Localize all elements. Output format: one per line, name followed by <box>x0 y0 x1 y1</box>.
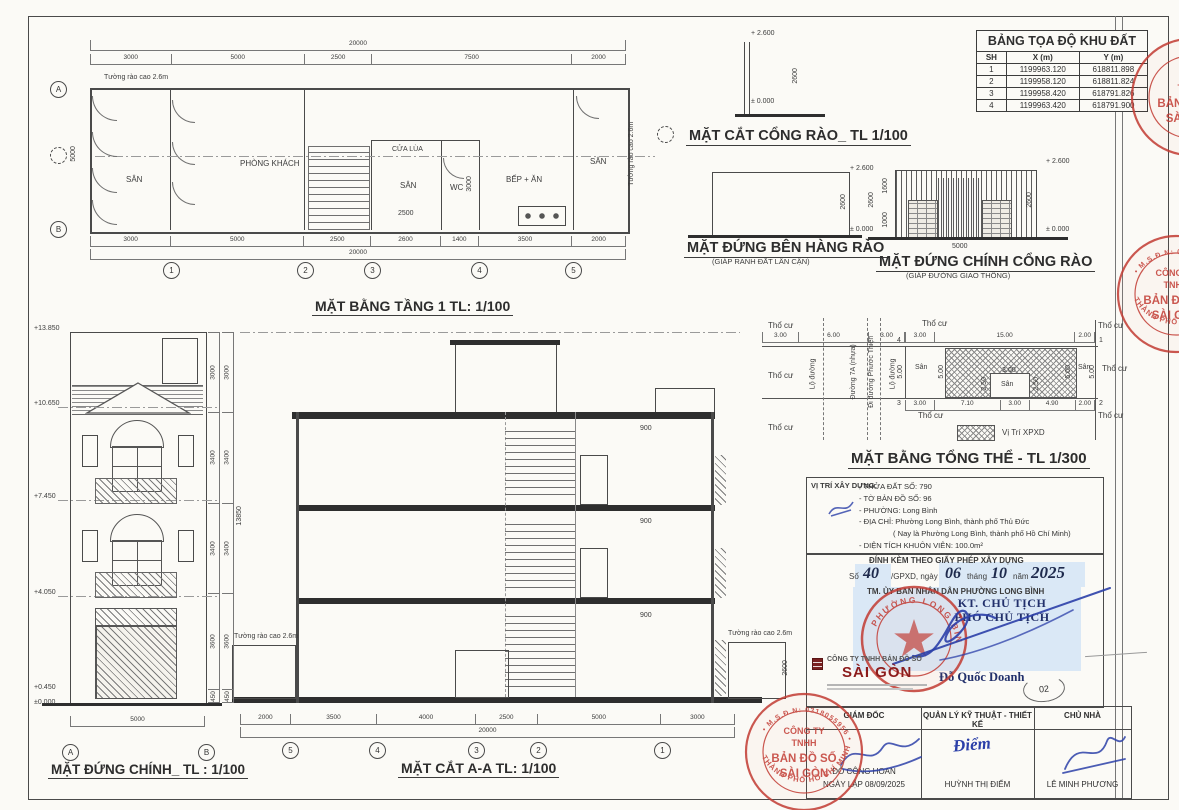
frame-inner-line <box>1115 16 1123 798</box>
titleblock-col3-name: LÊ MINH PHƯƠNG <box>1034 780 1131 789</box>
corner: 1 <box>1099 337 1103 345</box>
side-window <box>82 435 98 467</box>
side-window <box>178 435 194 467</box>
section-marker-icon <box>50 147 67 164</box>
level: +13.850 <box>34 325 60 333</box>
wall <box>573 88 574 230</box>
plan-dim-left: 5000 <box>70 146 78 162</box>
plot-top-dims: 3.0015.002.00 <box>905 332 1095 343</box>
balcony-rail <box>715 548 726 598</box>
plan-total-dim: 20000 <box>90 40 626 51</box>
blueprint-sheet: { "labels":{"fence":"Tường rào cao 2.6m"… <box>0 0 1179 810</box>
grid-bubble: 2 <box>530 742 547 759</box>
room-label: BẾP + ĂN <box>506 176 542 185</box>
location-line: ( Nay là Phường Long Bình, thành phố Hồ … <box>859 528 1099 540</box>
dim: 1000 <box>882 212 890 228</box>
room-label: WC <box>450 184 463 193</box>
grid-bubble-4: 4 <box>471 262 488 279</box>
dim: 2600 <box>868 192 876 208</box>
fence-dim: 2600 <box>782 660 790 676</box>
titleblock-col2-header: QUẢN LÝ KỸ THUẬT - THIẾT KẾ <box>921 711 1034 729</box>
ground-line <box>688 235 862 238</box>
dim: 1600 <box>882 178 890 194</box>
gate-front-title: MẶT ĐỨNG CHÍNH CỔNG RÀO <box>876 254 1095 272</box>
company-stamp: TNHH BẢN ĐỒ SỐ SÀI GÒN <box>1128 35 1179 159</box>
plan-total-dim-bottom: 20000 <box>90 249 626 260</box>
grid-bubble-3: 3 <box>364 262 381 279</box>
bulkhead-slab <box>450 340 560 345</box>
roof-gable <box>85 381 191 415</box>
section-door-ground <box>455 650 509 698</box>
location-line: - DIỆN TÍCH KHUÔN VIÊN: 100.0m² <box>859 540 1099 552</box>
grid-bubble: 3 <box>468 742 485 759</box>
roof-parapet <box>655 388 715 414</box>
side-window <box>82 530 98 562</box>
section-door <box>580 455 608 505</box>
blue-check-mark <box>825 494 857 520</box>
ground-line <box>868 237 1068 240</box>
stair-plan <box>308 146 370 230</box>
room-label: SÂN <box>590 158 606 167</box>
top-level-line <box>240 332 740 333</box>
corner: 2 <box>1099 400 1103 408</box>
stair-bulkhead <box>455 344 557 414</box>
company-name-line2: SÀI GÒN <box>842 664 912 681</box>
page-number: 02 <box>1022 674 1066 704</box>
level: ± 0.000 <box>850 226 873 234</box>
wall <box>711 412 714 703</box>
boundary-line <box>762 398 1098 399</box>
gate-center-bars <box>938 178 982 237</box>
fence-wall <box>232 645 296 699</box>
elevation-dims: 3000340034003600450 <box>208 332 220 703</box>
wall <box>170 88 171 230</box>
gate-pier <box>982 200 1012 239</box>
elevation-title: MẶT ĐỨNG CHÍNH_ TL : 1/100 <box>48 762 248 779</box>
company-logo-icon <box>812 658 823 670</box>
balcony-dim: 900 <box>640 612 652 620</box>
svg-text:BẢN ĐỒ SỐ: BẢN ĐỒ SỐ <box>1157 96 1179 110</box>
grid-bubble-A: A <box>50 81 67 98</box>
ground-line <box>42 703 222 706</box>
site-plan-title: MẶT BẰNG TỔNG THỂ - TL 1/300 <box>848 450 1090 469</box>
company-stamp: • M.S.Đ.N: 0318055956 • THÀNH PHỐ HỒ CHÍ… <box>742 690 866 810</box>
dim-v: 5.00 <box>938 365 946 379</box>
stair-flight <box>505 425 575 501</box>
road-dims: 3.006.003.00 <box>762 332 905 343</box>
section-bottom-dims: 200035004000250050003000 <box>240 714 735 725</box>
tho-cu: Thổ cư <box>768 424 793 433</box>
elevation-width-dim: 5000 <box>70 716 205 727</box>
svg-text:CÔNG TY: CÔNG TY <box>1155 267 1179 278</box>
section-marker-icon <box>657 126 674 143</box>
legend-swatch <box>957 425 995 441</box>
plot-bottom-dims: 3.007.103.004.902.00 <box>905 400 1095 411</box>
section-total-height: 13850 <box>236 506 244 525</box>
side-window <box>178 530 194 562</box>
svg-text:TNHH: TNHH <box>792 738 817 748</box>
wall <box>371 140 372 230</box>
section-title: MẶT CẮT A-A TL: 1/100 <box>398 760 559 778</box>
level: + 2.600 <box>751 30 775 38</box>
location-line: - PHƯỜNG: Long Bình <box>859 505 1099 517</box>
svg-text:BẢN ĐỒ SỐ: BẢN ĐỒ SỐ <box>1143 293 1179 307</box>
san-label: Sân <box>1001 381 1013 389</box>
room-label: SÂN <box>126 176 142 185</box>
road-label: Lộ đường <box>810 359 818 390</box>
stair-flight <box>505 518 575 594</box>
stair-shaft-line <box>575 412 576 697</box>
permit-number-hw: 40 <box>863 565 879 583</box>
section-door <box>580 548 608 598</box>
gate-width-dim: 5000 <box>952 243 968 251</box>
road-label: Đường 7A (nhựa) <box>850 344 858 399</box>
grid-bubble: 4 <box>369 742 386 759</box>
tho-cu: Thổ cư <box>1102 365 1127 374</box>
corner: 3 <box>897 400 901 408</box>
section-total-dim: 20000 <box>240 727 735 738</box>
dim: 2600 <box>792 68 800 84</box>
room-label: CỬA LÙA <box>392 146 423 154</box>
tho-cu: Thổ cư <box>768 322 793 331</box>
san-label: Sân <box>915 364 927 372</box>
level: ±0.000 <box>34 699 55 707</box>
svg-text:SÀI GÒN: SÀI GÒN <box>1152 309 1179 322</box>
road-label: Đi đường Phước Thiện <box>868 336 876 408</box>
grid-bubble-5: 5 <box>565 262 582 279</box>
balcony-rail <box>715 455 726 505</box>
designer-signature: Điểm <box>952 733 991 756</box>
titleblock-col3-header: CHỦ NHÀ <box>1034 711 1131 720</box>
coordinate-table: BẢNG TỌA ĐỘ KHU ĐẤTSHX (m)Y (m)11199963.… <box>976 30 1148 112</box>
svg-text:SÀI GÒN: SÀI GÒN <box>1166 112 1179 125</box>
company-address-line <box>827 684 927 686</box>
san-dim: 2.50 <box>981 377 989 391</box>
svg-text:CÔNG TY: CÔNG TY <box>783 725 824 736</box>
san-dim: 2.50 <box>1033 377 1041 391</box>
permit-so-label: Số <box>849 573 859 582</box>
grid-bubble-B: B <box>198 744 215 761</box>
room-label: SÂN <box>400 182 416 191</box>
gate-front-subtitle: (GIÁP ĐƯỜNG GIAO THÔNG) <box>906 272 1010 280</box>
level: + 2.600 <box>850 165 874 173</box>
level: +7.450 <box>34 493 56 501</box>
company-stamp: • M.S.Đ.N: 0318055956 • THÀNH PHỐ HỒ CHÍ… <box>1114 232 1179 356</box>
roof-slab <box>292 412 715 419</box>
location-line: - TỜ BẢN ĐỒ SỐ: 96 <box>859 493 1099 505</box>
gate-post <box>744 42 750 116</box>
grid-bubble-1: 1 <box>163 262 180 279</box>
level: ± 0.000 <box>1046 226 1069 234</box>
grid-bubble-B: B <box>50 221 67 238</box>
roof-bulkhead <box>162 338 198 384</box>
section-height-dims: 3000340034003600450 <box>222 332 234 703</box>
stair-flight <box>505 612 575 693</box>
dim-v: 5.00 <box>1065 365 1073 379</box>
location-lines: - THỬA ĐẤT SỐ: 790 - TỜ BẢN ĐỒ SỐ: 96 - … <box>859 481 1099 552</box>
plot-edge <box>1095 320 1096 440</box>
san-dim: 3.00 <box>1002 367 1016 375</box>
svg-text:TNHH: TNHH <box>1164 280 1179 290</box>
plan-dim-inner: 3000 <box>466 176 474 192</box>
side-fence-title: MẶT ĐỨNG BÊN HÀNG RÀO <box>684 240 887 258</box>
fence-label-top: Tường rào cao 2.6m <box>104 74 168 82</box>
legend-label: Vị Trí XPXD <box>1002 429 1045 438</box>
wall <box>296 412 299 703</box>
balcony-rail <box>95 478 177 504</box>
level-line <box>58 407 218 408</box>
svg-text:SÀI GÒN: SÀI GÒN <box>780 767 829 780</box>
side-fence-subtitle: (GIÁP RANH ĐẤT LÂN CẬN) <box>712 258 810 266</box>
level: + 2.600 <box>1046 158 1070 166</box>
level: +4.050 <box>34 589 56 597</box>
level: +10.650 <box>34 400 60 408</box>
tho-cu: Thổ cư <box>922 320 947 329</box>
fence-label: Tường rào cao 2.6m <box>728 630 792 638</box>
level: ± 0.000 <box>751 98 774 106</box>
wall <box>304 88 305 230</box>
balcony-rail <box>95 572 177 598</box>
boundary-line <box>762 346 1098 347</box>
tho-cu: Thổ cư <box>768 372 793 381</box>
wall <box>479 140 480 230</box>
stove-counter <box>518 206 566 226</box>
level: +0.450 <box>34 684 56 692</box>
corner: 4 <box>897 337 901 345</box>
grid-bubble: 1 <box>654 742 671 759</box>
wall <box>441 140 442 230</box>
titleblock-col2-name: HUỲNH THỊ ĐIỂM <box>921 780 1034 789</box>
balcony-dim: 900 <box>640 518 652 526</box>
dim-v: 5.00 <box>897 365 905 379</box>
dim-v: 5.00 <box>1089 365 1097 379</box>
balcony-rail <box>715 640 726 696</box>
owner-signature <box>1055 731 1131 775</box>
fence-panel <box>712 172 850 237</box>
ground-line <box>735 114 825 117</box>
grid-bubble-2: 2 <box>297 262 314 279</box>
company-name-line1: CÔNG TY TNHH BẢN ĐỒ SỐ <box>827 656 922 663</box>
plan-bottom-dims: 3000500025002600140035002000 <box>90 236 626 247</box>
fence-label-right: Tường rào cao 2.6m <box>628 122 636 186</box>
plan-title: MẶT BẰNG TẦNG 1 TL: 1/100 <box>312 298 513 316</box>
tho-cu: Thổ cư <box>918 412 943 421</box>
plan-top-dims: 30005000250075002000 <box>90 54 626 65</box>
dim: 2600 <box>840 194 848 210</box>
gate-pier <box>908 200 938 239</box>
room-label: PHÒNG KHÁCH <box>240 160 300 169</box>
fence-label: Tường rào cao 2.6m <box>234 633 298 641</box>
tho-cu: Thổ cư <box>1098 412 1123 421</box>
location-line: - THỬA ĐẤT SỐ: 790 <box>859 481 1099 493</box>
plot-edge <box>905 346 906 398</box>
gate-section-title: MẶT CẮT CỔNG RÀO_ TL 1/100 <box>686 128 911 146</box>
dim: 2600 <box>1026 192 1034 208</box>
wall <box>371 140 480 141</box>
plan-dim-small: 2500 <box>398 210 414 218</box>
folding-door <box>95 626 177 699</box>
location-line: - ĐỊA CHỈ: Phường Long Bình, thành phố T… <box>859 516 1099 528</box>
balcony-dim: 900 <box>640 425 652 433</box>
grid-bubble-A: A <box>62 744 79 761</box>
location-box: VỊ TRÍ XÂY DỰNG: - THỬA ĐẤT SỐ: 790 - TỜ… <box>806 477 1104 555</box>
grid-bubble: 5 <box>282 742 299 759</box>
svg-text:BẢN ĐỒ SỐ: BẢN ĐỒ SỐ <box>771 751 836 765</box>
door-transom <box>95 608 177 626</box>
